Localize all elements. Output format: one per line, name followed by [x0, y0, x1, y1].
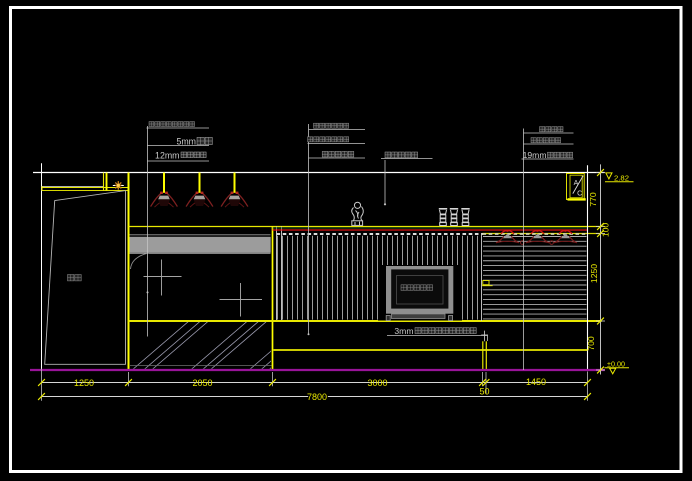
svg-text:700: 700	[586, 336, 596, 351]
svg-text:1250: 1250	[74, 378, 94, 388]
svg-text:±0.00: ±0.00	[607, 360, 625, 369]
svg-text:3000: 3000	[367, 378, 387, 388]
svg-text:2.82: 2.82	[614, 173, 629, 182]
svg-text:3mm: 3mm	[394, 326, 413, 336]
svg-text:A: A	[574, 180, 579, 187]
svg-text:770: 770	[588, 192, 598, 207]
svg-text:12mm: 12mm	[155, 151, 179, 161]
svg-text:2050: 2050	[192, 378, 212, 388]
svg-text:1250: 1250	[589, 264, 599, 283]
svg-text:50: 50	[479, 386, 489, 396]
svg-text:7800: 7800	[307, 392, 327, 402]
svg-text:5mm: 5mm	[176, 136, 196, 146]
svg-text:100: 100	[601, 223, 611, 238]
svg-text:19mm: 19mm	[523, 150, 547, 160]
svg-text:1450: 1450	[526, 377, 546, 387]
svg-text:C: C	[577, 191, 582, 198]
